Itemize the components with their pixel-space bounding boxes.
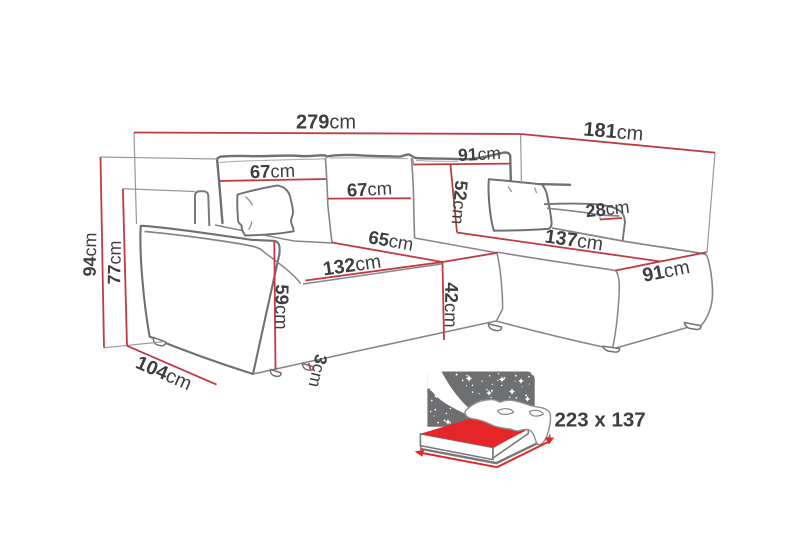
svg-text:94cm: 94cm (80, 232, 101, 276)
svg-text:91cm: 91cm (458, 143, 502, 165)
svg-text:223 x 137: 223 x 137 (555, 409, 646, 432)
svg-text:67cm: 67cm (346, 177, 392, 200)
svg-text:42cm: 42cm (441, 282, 463, 328)
svg-text:77cm: 77cm (104, 240, 125, 284)
svg-text:52cm: 52cm (448, 180, 472, 226)
svg-text:279cm: 279cm (296, 112, 356, 134)
svg-text:67cm: 67cm (250, 160, 296, 183)
svg-text:59cm: 59cm (271, 284, 293, 330)
